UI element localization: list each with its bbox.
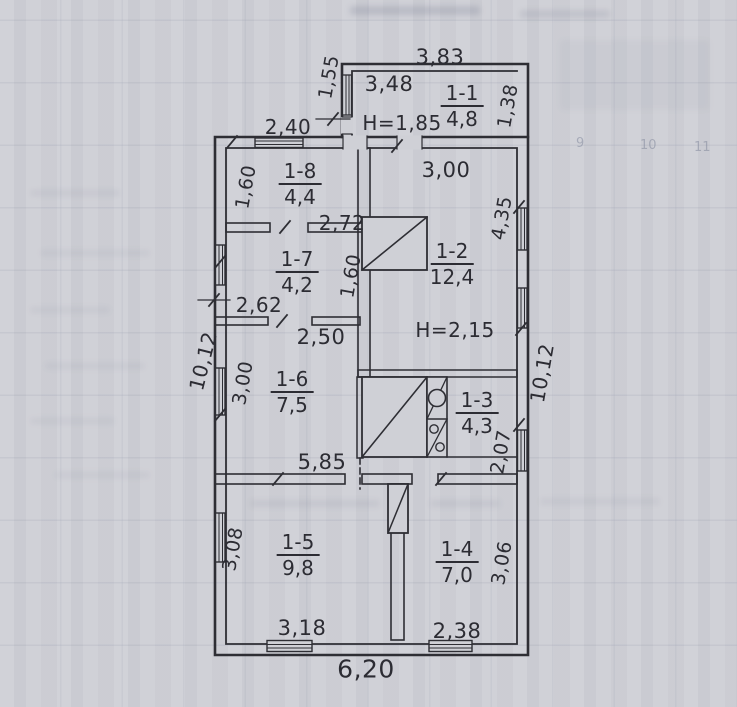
- fixture-icon: [430, 425, 438, 433]
- window-symbol: [255, 138, 303, 148]
- dim-r16-top: 2,50: [297, 325, 346, 349]
- room-number: 1-5: [277, 531, 320, 556]
- dim-r12-top: 3,00: [422, 158, 471, 182]
- dim-r14-bottom: 2,38: [433, 619, 482, 643]
- room-label-1-5: 1-5 9,8: [277, 531, 320, 580]
- room-number: 1-8: [279, 160, 322, 185]
- dim-r15-bottom: 3,18: [278, 616, 327, 640]
- room-label-1-1: 1-1 4,8: [441, 82, 484, 131]
- room-number: 1-2: [431, 240, 474, 265]
- room-area: 12,4: [430, 265, 475, 289]
- dim-r18-bottom: 2,72: [319, 211, 366, 235]
- flue-symbol: [388, 484, 408, 533]
- wall-mid-bottom: [438, 474, 517, 484]
- stove-symbol-main: [362, 377, 427, 457]
- room-number: 1-6: [271, 368, 314, 393]
- height-label-1-1: H=1,85: [362, 111, 441, 135]
- sink-icon: [429, 390, 446, 407]
- bath-fixtures: [427, 377, 447, 457]
- room-area: 7,0: [441, 563, 473, 587]
- window-symbol: [518, 430, 528, 471]
- scanned-floor-plan-page: 9 10 11: [0, 0, 737, 707]
- room-number: 1-3: [456, 389, 499, 414]
- room-label-1-7: 1-7 4,2: [276, 248, 319, 297]
- room-label-1-2: 1-2 12,4: [430, 240, 475, 289]
- wall-mid-bottom: [362, 474, 412, 484]
- room-number: 1-7: [276, 248, 319, 273]
- dim-annex-inner: 3,48: [365, 72, 414, 96]
- window-symbol: [216, 368, 226, 415]
- door-opening: [343, 136, 367, 150]
- height-label-1-2: H=2,15: [415, 318, 494, 342]
- wall-r18-r17: [226, 223, 270, 232]
- stove-symbol-upper: [362, 217, 427, 270]
- dim-mid-width: 5,85: [298, 450, 347, 474]
- wall-r17-r16: [215, 317, 268, 325]
- room-area: 9,8: [282, 556, 314, 580]
- wall-r12-bottom: [358, 370, 517, 377]
- room-area: 4,3: [461, 414, 493, 438]
- floor-plan-drawing: [0, 0, 737, 707]
- room-number: 1-1: [441, 82, 484, 107]
- dim-top-left: 2,40: [265, 115, 312, 139]
- dim-bottom-total: 6,20: [337, 655, 395, 684]
- room-label-1-4: 1-4 7,0: [436, 538, 479, 587]
- room-label-1-3: 1-3 4,3: [456, 389, 499, 438]
- window-symbol: [267, 641, 312, 652]
- window-symbol: [343, 75, 352, 115]
- outer-wall-outline: [215, 64, 528, 655]
- room-area: 7,5: [276, 393, 308, 417]
- room-label-1-8: 1-8 4,4: [279, 160, 322, 209]
- window-symbol: [518, 208, 528, 250]
- room-number: 1-4: [436, 538, 479, 563]
- dim-r17-bottom: 2,62: [236, 293, 283, 317]
- room-label-1-6: 1-6 7,5: [271, 368, 314, 417]
- window-symbol: [518, 288, 528, 328]
- dim-annex-top: 3,83: [416, 45, 465, 69]
- room-area: 4,2: [281, 273, 313, 297]
- fixture-icon: [436, 443, 444, 451]
- room-area: 4,4: [284, 185, 316, 209]
- wall-r17-r16: [312, 317, 360, 325]
- room-area: 4,8: [446, 107, 478, 131]
